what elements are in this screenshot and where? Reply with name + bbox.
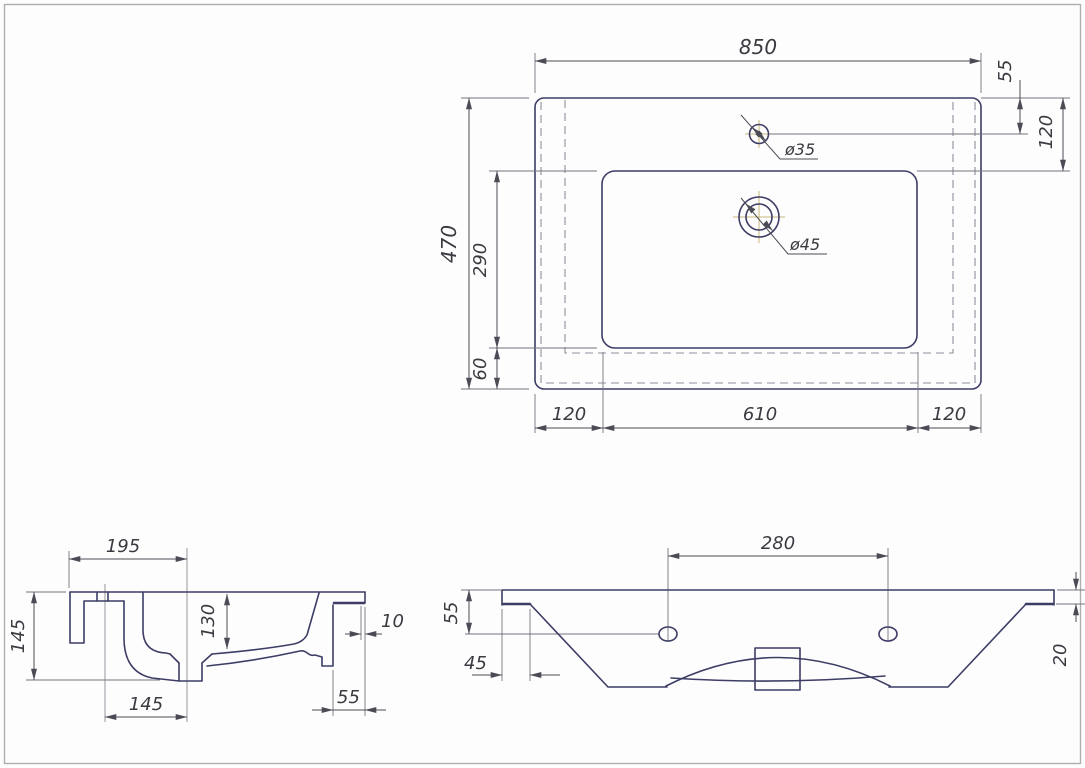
dim-faucet-offset: 55 xyxy=(995,60,1016,83)
dim-drain-dia: ø45 xyxy=(789,235,820,254)
dim-edge-inset: 45 xyxy=(464,653,487,674)
dim-bowl-depth: 130 xyxy=(198,604,219,638)
dim-edge-thickness: 20 xyxy=(1050,644,1071,667)
front-bowl-underside xyxy=(671,676,885,681)
drain-dia-leader: ø45 xyxy=(741,198,827,254)
front-hole-extensions xyxy=(465,548,888,642)
side-bowl-inner-left xyxy=(143,592,170,654)
dim-130-group: 130 xyxy=(198,594,227,649)
dim-margin-right: 120 xyxy=(932,404,966,425)
dim-margin-left: 120 xyxy=(552,404,586,425)
drain-hole-centerlines xyxy=(733,191,785,243)
dim-basin-top-offset: 120 xyxy=(1036,115,1057,149)
dim-lip-thickness: 10 xyxy=(381,611,404,632)
side-back-wall-outer xyxy=(124,601,179,681)
dim-overall-depth: 470 xyxy=(437,225,461,263)
top-view: ø35 ø45 850 470 290 60 xyxy=(437,35,1070,433)
dim-bottom-group: 120 610 120 xyxy=(535,352,981,433)
dim-overall-height: 145 xyxy=(8,619,29,653)
dim-bottom-offset: 60 xyxy=(470,358,491,381)
dim-280-group: 280 xyxy=(668,533,888,556)
dim-55-hole-group: 55 xyxy=(441,590,502,634)
side-bowl-bottom-inner xyxy=(212,593,319,654)
side-bowl-underside xyxy=(207,605,333,666)
dim-drain-from-back: 195 xyxy=(106,536,140,557)
dim-145-spacing-group: 145 xyxy=(105,694,187,717)
dim-10-group: 10 xyxy=(345,606,404,640)
dim-overall-width: 850 xyxy=(739,35,777,59)
dim-850-group: 850 xyxy=(535,35,981,93)
front-section-view: 280 55 45 20 xyxy=(441,533,1085,690)
faucet-dia-leader: ø35 xyxy=(741,115,818,159)
dim-hole-depth-offset: 55 xyxy=(441,602,462,625)
side-section-view: 195 145 130 10 55 xyxy=(8,536,404,722)
dim-basin-depth: 290 xyxy=(470,243,491,277)
side-drain-boss xyxy=(179,663,202,681)
front-side-edges xyxy=(502,590,1054,605)
dim-55-overhang-group: 55 xyxy=(312,607,386,716)
dim-front-overhang: 55 xyxy=(337,687,360,708)
washbasin-drawing: ø35 ø45 850 470 290 60 xyxy=(0,0,1085,768)
dim-faucet-dia: ø35 xyxy=(784,140,815,159)
front-drain-boss xyxy=(755,648,800,690)
sheet-border xyxy=(5,5,1081,764)
side-faucet-hole-section xyxy=(97,592,108,601)
dim-hole-spacing: 280 xyxy=(761,533,795,554)
dim-195-group: 195 xyxy=(69,536,187,588)
dim-20-group: 20 xyxy=(1050,572,1085,666)
dim-drain-from-faucet: 145 xyxy=(129,694,163,715)
front-right-slant-foot xyxy=(889,604,1026,687)
dim-basin-width: 610 xyxy=(743,404,777,425)
dim-290-60-group: 290 60 xyxy=(470,171,597,389)
drawing-page: ø35 ø45 850 470 290 60 xyxy=(0,0,1085,768)
side-drain-funnel xyxy=(170,654,212,663)
